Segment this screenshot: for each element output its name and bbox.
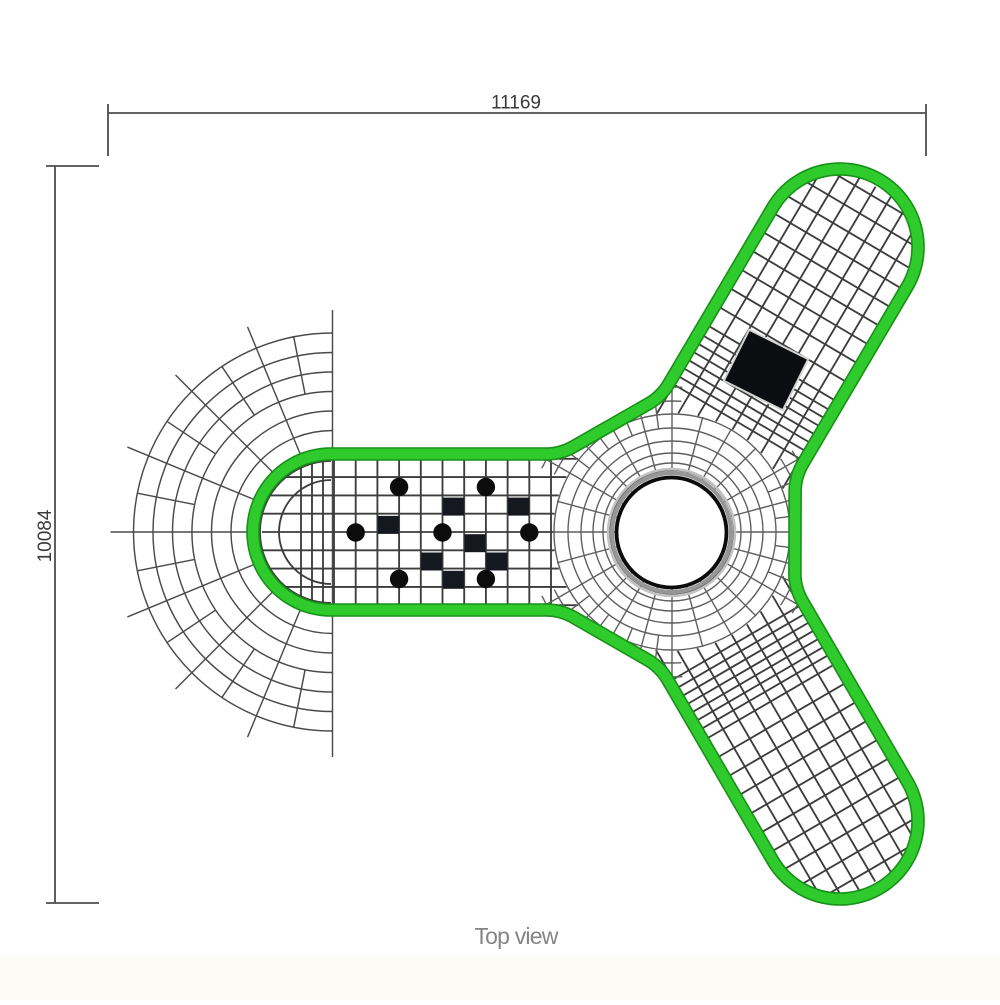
svg-text:11169: 11169	[491, 93, 541, 114]
svg-text:10084: 10084	[35, 509, 56, 562]
svg-text:Top view: Top view	[474, 923, 558, 949]
